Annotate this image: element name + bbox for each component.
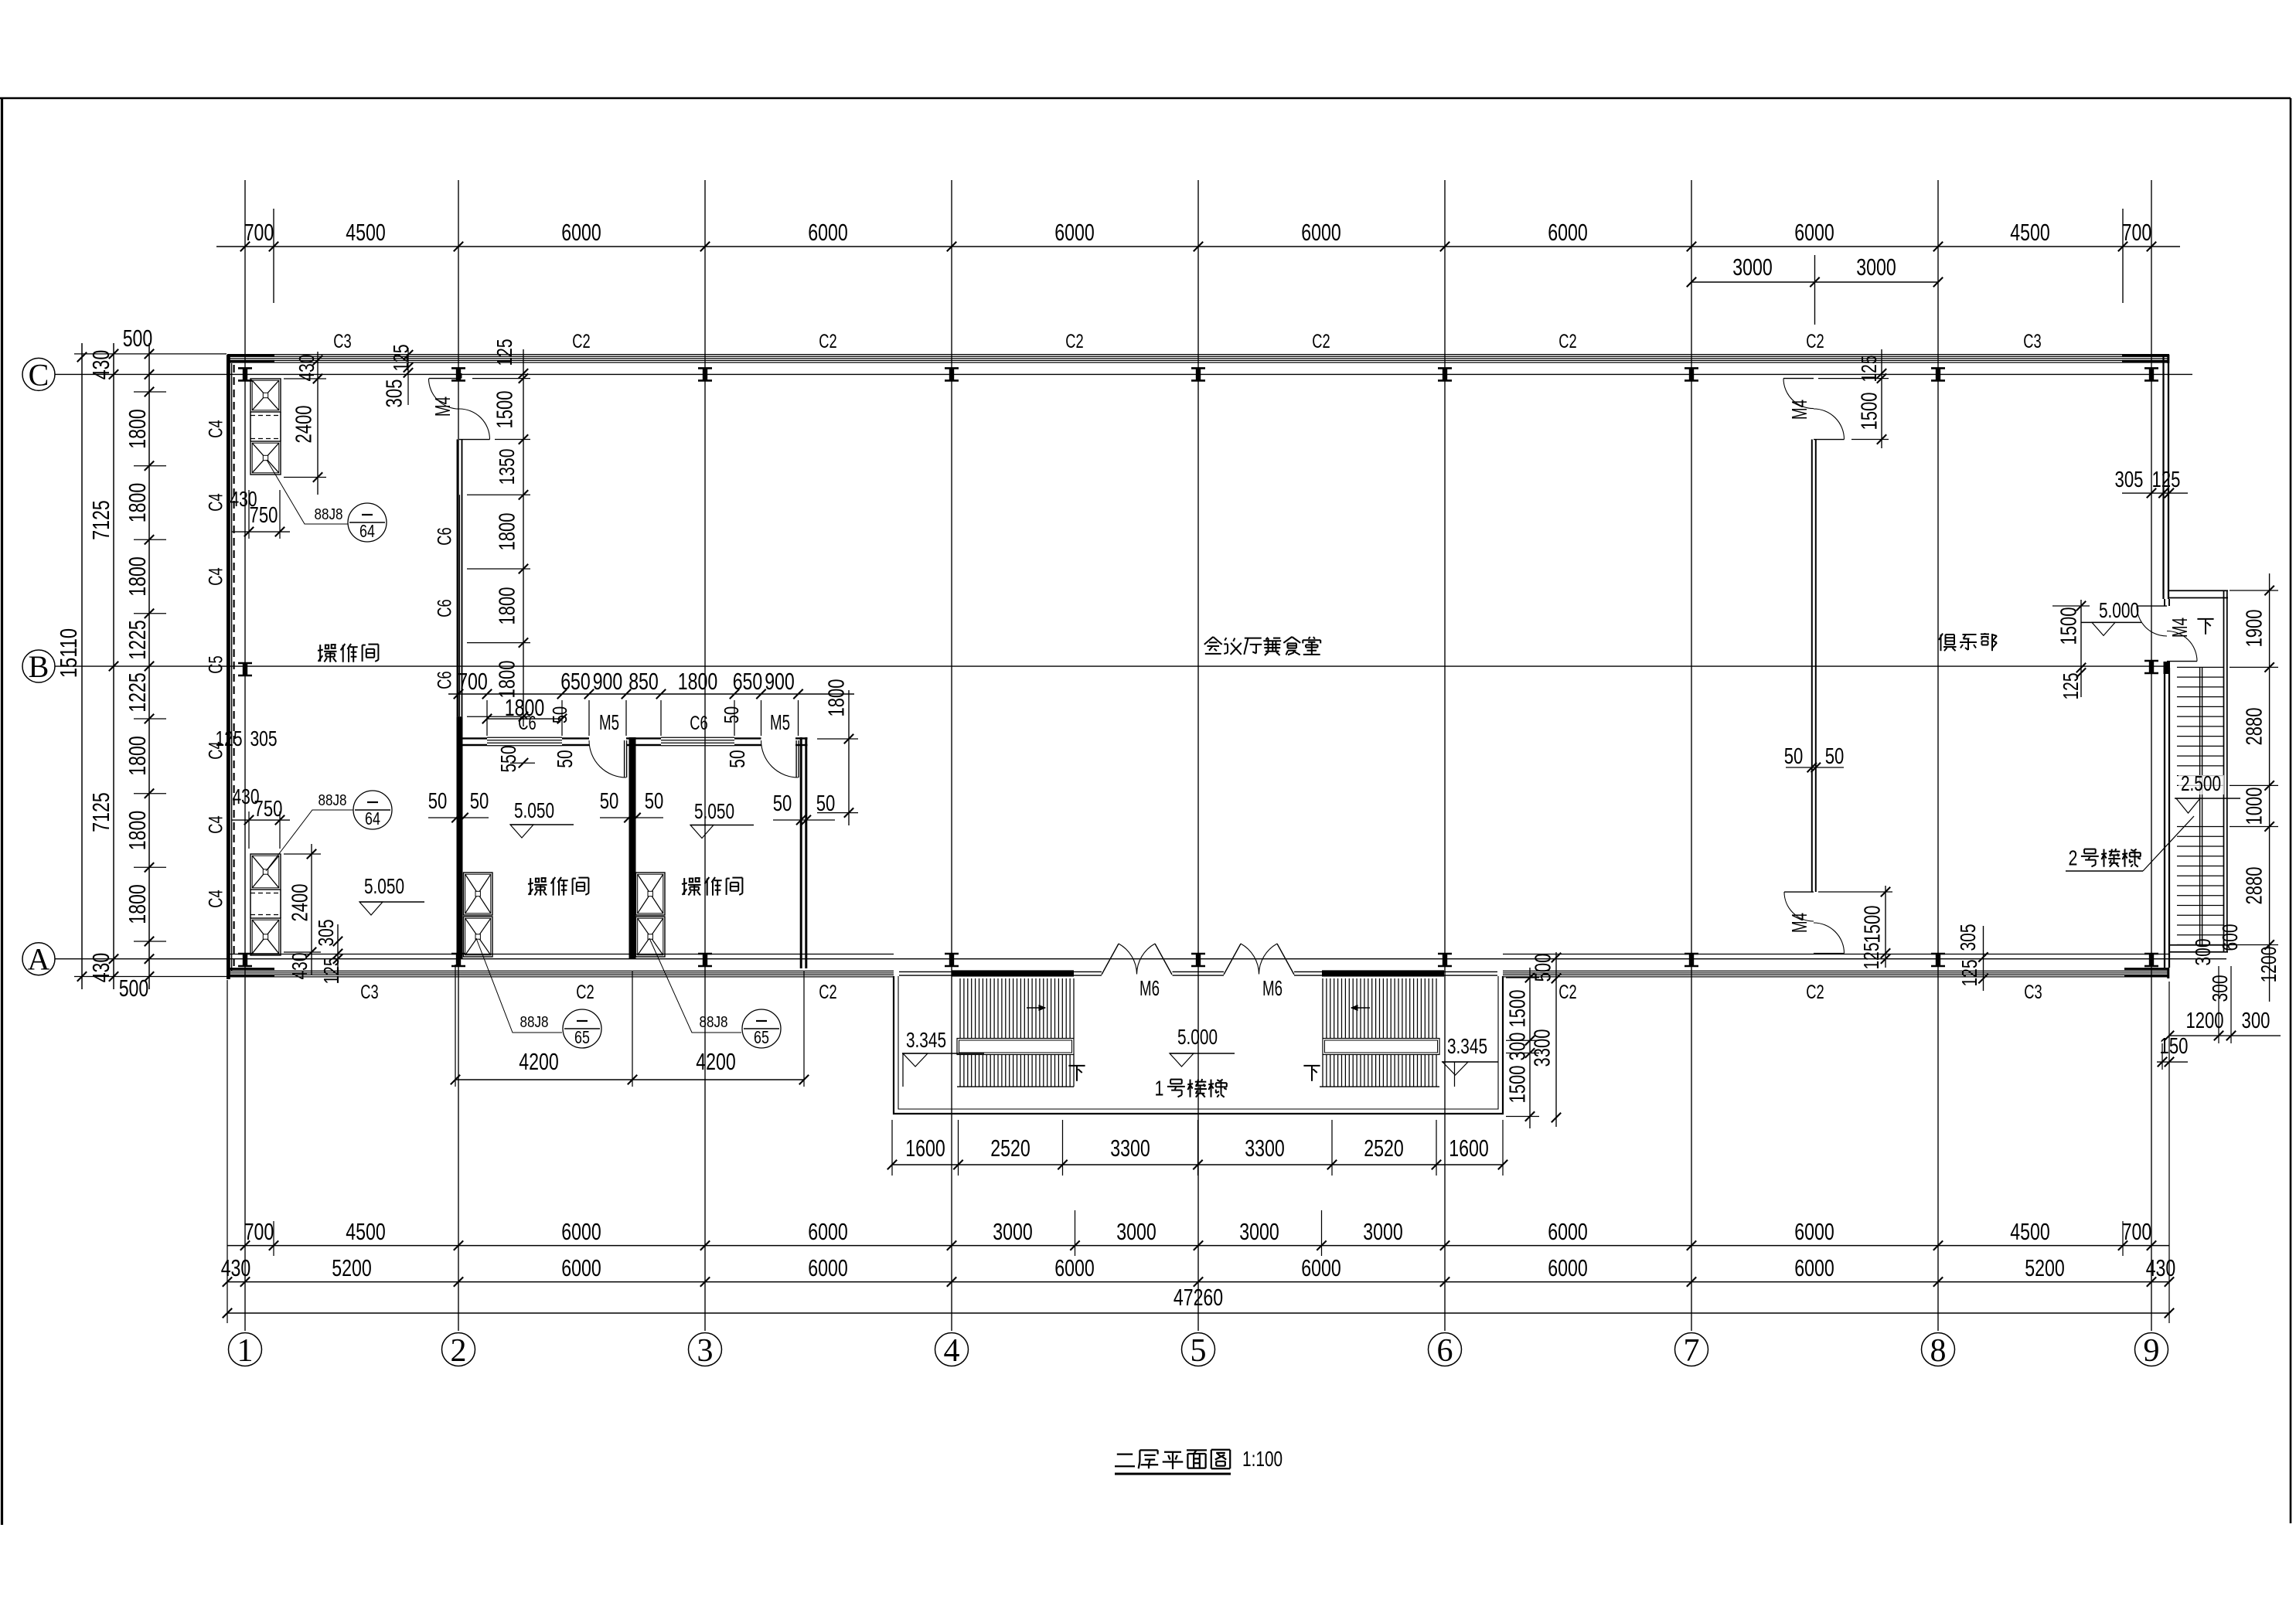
svg-text:88J8: 88J8 xyxy=(315,505,343,523)
svg-text:5.000: 5.000 xyxy=(1177,1025,1218,1049)
svg-text:C5: C5 xyxy=(206,655,227,673)
svg-text:1800: 1800 xyxy=(124,556,151,597)
svg-text:8: 8 xyxy=(1930,1333,1947,1369)
svg-text:C3: C3 xyxy=(333,332,351,352)
svg-text:700: 700 xyxy=(2122,1219,2152,1245)
svg-text:1800: 1800 xyxy=(124,811,151,851)
svg-text:9: 9 xyxy=(2144,1333,2160,1369)
svg-text:C2: C2 xyxy=(819,332,836,352)
svg-text:125: 125 xyxy=(319,957,343,984)
svg-text:1500: 1500 xyxy=(1858,392,1882,430)
svg-text:1500: 1500 xyxy=(1861,905,1886,943)
svg-text:2520: 2520 xyxy=(990,1135,1030,1162)
svg-text:1200: 1200 xyxy=(2185,1009,2223,1033)
svg-text:1800: 1800 xyxy=(678,669,718,695)
svg-text:C2: C2 xyxy=(1558,332,1576,352)
svg-text:6000: 6000 xyxy=(561,1255,601,1281)
svg-text:6000: 6000 xyxy=(808,219,848,246)
svg-text:M5: M5 xyxy=(770,710,790,734)
svg-text:750: 750 xyxy=(250,503,278,528)
svg-text:C6: C6 xyxy=(518,713,536,734)
svg-text:2400: 2400 xyxy=(288,883,313,921)
svg-text:1900: 1900 xyxy=(2243,609,2267,647)
svg-text:4500: 4500 xyxy=(346,1219,386,1245)
svg-text:1: 1 xyxy=(237,1333,254,1369)
svg-text:C4: C4 xyxy=(206,493,227,512)
svg-text:50: 50 xyxy=(428,789,448,814)
svg-text:1800: 1800 xyxy=(124,483,151,523)
svg-text:C6: C6 xyxy=(435,599,456,617)
svg-text:430: 430 xyxy=(288,952,312,979)
svg-text:6000: 6000 xyxy=(561,1219,601,1245)
svg-text:3000: 3000 xyxy=(1856,254,1896,281)
svg-text:M4: M4 xyxy=(431,396,455,417)
svg-text:50: 50 xyxy=(1784,744,1804,769)
svg-text:700: 700 xyxy=(2122,219,2152,246)
svg-text:1600: 1600 xyxy=(905,1135,945,1162)
svg-text:6000: 6000 xyxy=(1301,219,1341,246)
svg-text:C6: C6 xyxy=(690,713,707,734)
svg-text:50: 50 xyxy=(725,750,749,767)
svg-text:5200: 5200 xyxy=(332,1255,372,1281)
svg-text:430: 430 xyxy=(2146,1255,2176,1281)
svg-text:65: 65 xyxy=(754,1027,769,1047)
svg-text:500: 500 xyxy=(123,325,153,352)
svg-text:2: 2 xyxy=(2069,846,2078,869)
svg-text:5.050: 5.050 xyxy=(694,799,734,823)
svg-text:6000: 6000 xyxy=(1054,219,1095,246)
svg-text:2520: 2520 xyxy=(1364,1135,1404,1162)
svg-text:1800: 1800 xyxy=(124,409,151,449)
svg-text:1800: 1800 xyxy=(124,884,151,924)
svg-text:1225: 1225 xyxy=(124,672,151,713)
svg-text:64: 64 xyxy=(359,521,375,541)
svg-text:6000: 6000 xyxy=(1301,1255,1341,1281)
svg-text:M4: M4 xyxy=(1787,913,1811,933)
svg-text:C: C xyxy=(29,357,49,392)
svg-text:4200: 4200 xyxy=(519,1049,559,1075)
svg-text:6000: 6000 xyxy=(1794,1255,1834,1281)
svg-text:C6: C6 xyxy=(435,527,456,545)
svg-text:3300: 3300 xyxy=(1110,1135,1150,1162)
svg-text:430: 430 xyxy=(221,1255,251,1281)
svg-text:47260: 47260 xyxy=(1174,1284,1223,1311)
svg-text:5.050: 5.050 xyxy=(514,798,554,822)
svg-text:C2: C2 xyxy=(1806,332,1824,352)
svg-text:A: A xyxy=(28,942,50,977)
svg-text:M6: M6 xyxy=(1139,976,1160,1000)
svg-text:300: 300 xyxy=(2191,938,2215,965)
svg-text:C3: C3 xyxy=(360,982,378,1003)
svg-text:305: 305 xyxy=(250,726,277,750)
svg-text:1350: 1350 xyxy=(495,449,519,485)
svg-text:125: 125 xyxy=(1857,355,1881,382)
svg-text:C2: C2 xyxy=(576,982,594,1003)
svg-text:4500: 4500 xyxy=(2010,219,2050,246)
svg-text:5.000: 5.000 xyxy=(2099,598,2139,622)
svg-text:1500: 1500 xyxy=(1506,989,1531,1027)
svg-text:6000: 6000 xyxy=(1548,1219,1588,1245)
svg-text:125: 125 xyxy=(2059,672,2083,699)
svg-text:900: 900 xyxy=(593,669,623,695)
svg-text:50: 50 xyxy=(553,750,577,767)
svg-text:C2: C2 xyxy=(1558,982,1576,1003)
svg-text:1800: 1800 xyxy=(496,587,520,624)
svg-text:700: 700 xyxy=(244,1219,274,1245)
svg-text:C4: C4 xyxy=(206,815,227,834)
svg-text:3.345: 3.345 xyxy=(1447,1034,1487,1058)
svg-text:500: 500 xyxy=(119,975,149,1002)
svg-text:50: 50 xyxy=(600,789,619,814)
svg-text:1000: 1000 xyxy=(2243,787,2267,825)
svg-text:3: 3 xyxy=(697,1333,714,1369)
svg-text:2.500: 2.500 xyxy=(2181,771,2221,795)
svg-text:M6: M6 xyxy=(1262,976,1283,1000)
svg-text:6000: 6000 xyxy=(808,1255,848,1281)
svg-text:7: 7 xyxy=(1684,1333,1700,1369)
svg-text:650: 650 xyxy=(733,669,763,695)
svg-text:6000: 6000 xyxy=(808,1219,848,1245)
svg-text:C2: C2 xyxy=(1806,982,1824,1003)
svg-text:2: 2 xyxy=(451,1333,467,1369)
svg-text:550: 550 xyxy=(496,745,520,772)
svg-text:305: 305 xyxy=(2115,468,2144,492)
svg-text:C4: C4 xyxy=(206,567,227,586)
svg-text:88J8: 88J8 xyxy=(520,1013,549,1031)
svg-text:C2: C2 xyxy=(1065,332,1083,352)
svg-text:65: 65 xyxy=(574,1027,590,1047)
svg-text:6000: 6000 xyxy=(1794,219,1834,246)
svg-text:850: 850 xyxy=(629,669,659,695)
svg-text:7125: 7125 xyxy=(88,792,114,832)
svg-text:4500: 4500 xyxy=(2010,1219,2050,1245)
svg-text:6000: 6000 xyxy=(1548,219,1588,246)
svg-text:4200: 4200 xyxy=(696,1049,736,1075)
svg-text:300: 300 xyxy=(2208,975,2232,1002)
svg-text:125: 125 xyxy=(1859,942,1883,969)
svg-text:1500: 1500 xyxy=(1506,1065,1531,1103)
svg-text:5.050: 5.050 xyxy=(364,874,404,898)
svg-text:305: 305 xyxy=(383,379,407,408)
svg-text:B: B xyxy=(29,649,49,684)
svg-text:50: 50 xyxy=(773,791,792,816)
svg-text:1200: 1200 xyxy=(2257,947,2281,983)
svg-text:125: 125 xyxy=(1957,959,1981,986)
svg-text:2400: 2400 xyxy=(292,405,317,443)
svg-text:C2: C2 xyxy=(1312,332,1330,352)
svg-text:3000: 3000 xyxy=(1116,1219,1157,1245)
svg-text:C4: C4 xyxy=(206,420,227,438)
svg-text:1600: 1600 xyxy=(1449,1135,1489,1162)
svg-text:6000: 6000 xyxy=(1548,1255,1588,1281)
svg-text:88J8: 88J8 xyxy=(319,791,347,809)
svg-text:4: 4 xyxy=(944,1333,960,1369)
svg-text:15110: 15110 xyxy=(56,628,82,678)
svg-text:1800: 1800 xyxy=(124,736,151,776)
svg-text:M5: M5 xyxy=(599,710,619,734)
svg-text:500: 500 xyxy=(1531,954,1556,982)
svg-text:700: 700 xyxy=(458,669,488,695)
svg-text:88J8: 88J8 xyxy=(700,1013,728,1031)
svg-text:5200: 5200 xyxy=(2025,1255,2065,1281)
svg-text:2880: 2880 xyxy=(2243,707,2267,745)
svg-text:900: 900 xyxy=(765,669,795,695)
svg-text:1: 1 xyxy=(1155,1076,1164,1100)
svg-text:150: 150 xyxy=(2160,1034,2189,1059)
svg-text:64: 64 xyxy=(365,808,380,829)
svg-text:700: 700 xyxy=(244,219,274,246)
svg-text:3000: 3000 xyxy=(1732,254,1773,281)
svg-text:6000: 6000 xyxy=(1794,1219,1834,1245)
svg-text:1:100: 1:100 xyxy=(1242,1447,1283,1471)
svg-text:1500: 1500 xyxy=(2057,607,2082,645)
svg-text:5: 5 xyxy=(1191,1333,1207,1369)
svg-text:3000: 3000 xyxy=(993,1219,1033,1245)
svg-text:C2: C2 xyxy=(572,332,590,352)
svg-text:C2: C2 xyxy=(819,982,836,1003)
svg-text:750: 750 xyxy=(254,797,283,822)
svg-text:6: 6 xyxy=(1437,1333,1453,1369)
svg-text:125: 125 xyxy=(492,339,516,366)
svg-text:M4: M4 xyxy=(1787,400,1811,420)
svg-text:6000: 6000 xyxy=(561,219,601,246)
svg-text:430: 430 xyxy=(88,953,114,983)
svg-text:650: 650 xyxy=(560,669,591,695)
svg-text:305: 305 xyxy=(1956,924,1980,951)
svg-text:3000: 3000 xyxy=(1239,1219,1279,1245)
svg-text:M4: M4 xyxy=(2168,618,2192,638)
svg-text:300: 300 xyxy=(1506,1033,1531,1061)
svg-text:7125: 7125 xyxy=(88,500,114,540)
svg-text:50: 50 xyxy=(548,706,571,723)
svg-text:50: 50 xyxy=(645,789,664,814)
svg-text:2880: 2880 xyxy=(2243,866,2267,904)
svg-text:1800: 1800 xyxy=(496,660,520,698)
svg-text:50: 50 xyxy=(1825,744,1845,769)
svg-text:1800: 1800 xyxy=(496,512,520,550)
svg-text:6000: 6000 xyxy=(1054,1255,1095,1281)
svg-text:430: 430 xyxy=(295,354,319,381)
svg-text:125: 125 xyxy=(215,726,242,750)
svg-text:1500: 1500 xyxy=(493,390,518,428)
svg-text:300: 300 xyxy=(2242,1009,2270,1033)
svg-text:C6: C6 xyxy=(435,671,456,689)
svg-text:3000: 3000 xyxy=(1363,1219,1403,1245)
svg-text:3.345: 3.345 xyxy=(906,1028,946,1052)
svg-text:50: 50 xyxy=(720,706,743,723)
svg-text:305: 305 xyxy=(314,919,338,946)
svg-text:50: 50 xyxy=(470,789,489,814)
svg-text:C4: C4 xyxy=(206,890,227,908)
svg-text:C3: C3 xyxy=(2024,982,2042,1003)
svg-text:3300: 3300 xyxy=(1531,1029,1555,1067)
svg-text:1225: 1225 xyxy=(124,620,151,660)
svg-text:4500: 4500 xyxy=(346,219,386,246)
svg-text:1800: 1800 xyxy=(825,679,850,716)
svg-text:3300: 3300 xyxy=(1245,1135,1285,1162)
svg-text:600: 600 xyxy=(2218,924,2242,951)
svg-text:C3: C3 xyxy=(2023,332,2041,352)
